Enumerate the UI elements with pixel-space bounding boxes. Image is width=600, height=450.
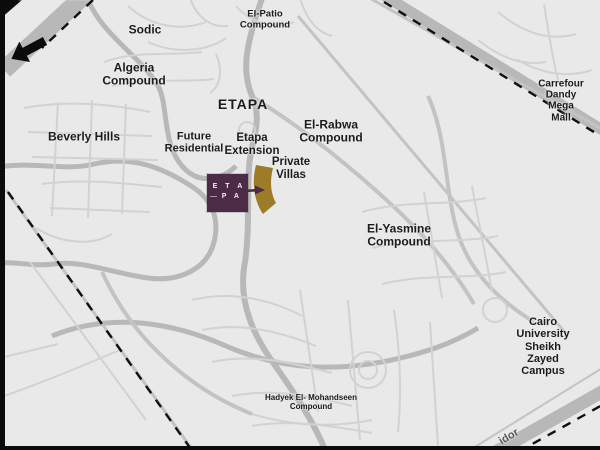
frame-left-edge <box>0 0 5 450</box>
location-map: Desert Road Sodic El-Patio Compound Alge… <box>0 0 600 450</box>
map-graphics <box>0 0 600 450</box>
road-network-major <box>0 0 600 450</box>
frame-bottom-edge <box>0 446 600 450</box>
etapa-logo-line1: E T A <box>210 183 248 190</box>
etapa-logo-line2: P A <box>222 193 242 200</box>
logo-mark <box>210 196 217 197</box>
etapa-logo: E T A P A <box>207 174 248 212</box>
